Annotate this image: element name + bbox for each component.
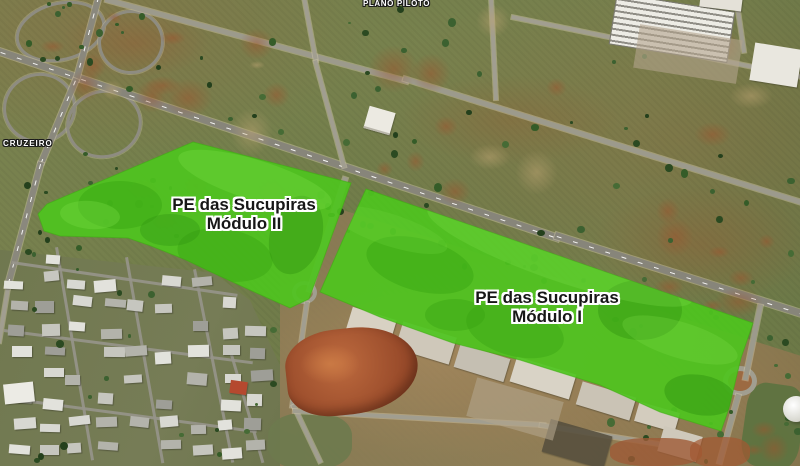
satellite-map[interactable]: PLANO PILOTO CRUZEIRO PE das Sucupiras M…: [0, 0, 800, 466]
overlay-label-line2: Módulo I: [452, 307, 642, 326]
overlay-label-line2: Módulo II: [149, 214, 339, 233]
overlay-label-modulo-2: PE das Sucupiras Módulo II: [149, 195, 339, 233]
map-label-cruzeiro: CRUZEIRO: [3, 139, 53, 148]
overlay-label-modulo-1: PE das Sucupiras Módulo I: [452, 288, 642, 326]
overlay-label-line1: PE das Sucupiras: [149, 195, 339, 214]
overlay-label-line1: PE das Sucupiras: [452, 288, 642, 307]
map-label-plano-piloto: PLANO PILOTO: [363, 0, 430, 8]
overlay-layer: [0, 0, 800, 466]
